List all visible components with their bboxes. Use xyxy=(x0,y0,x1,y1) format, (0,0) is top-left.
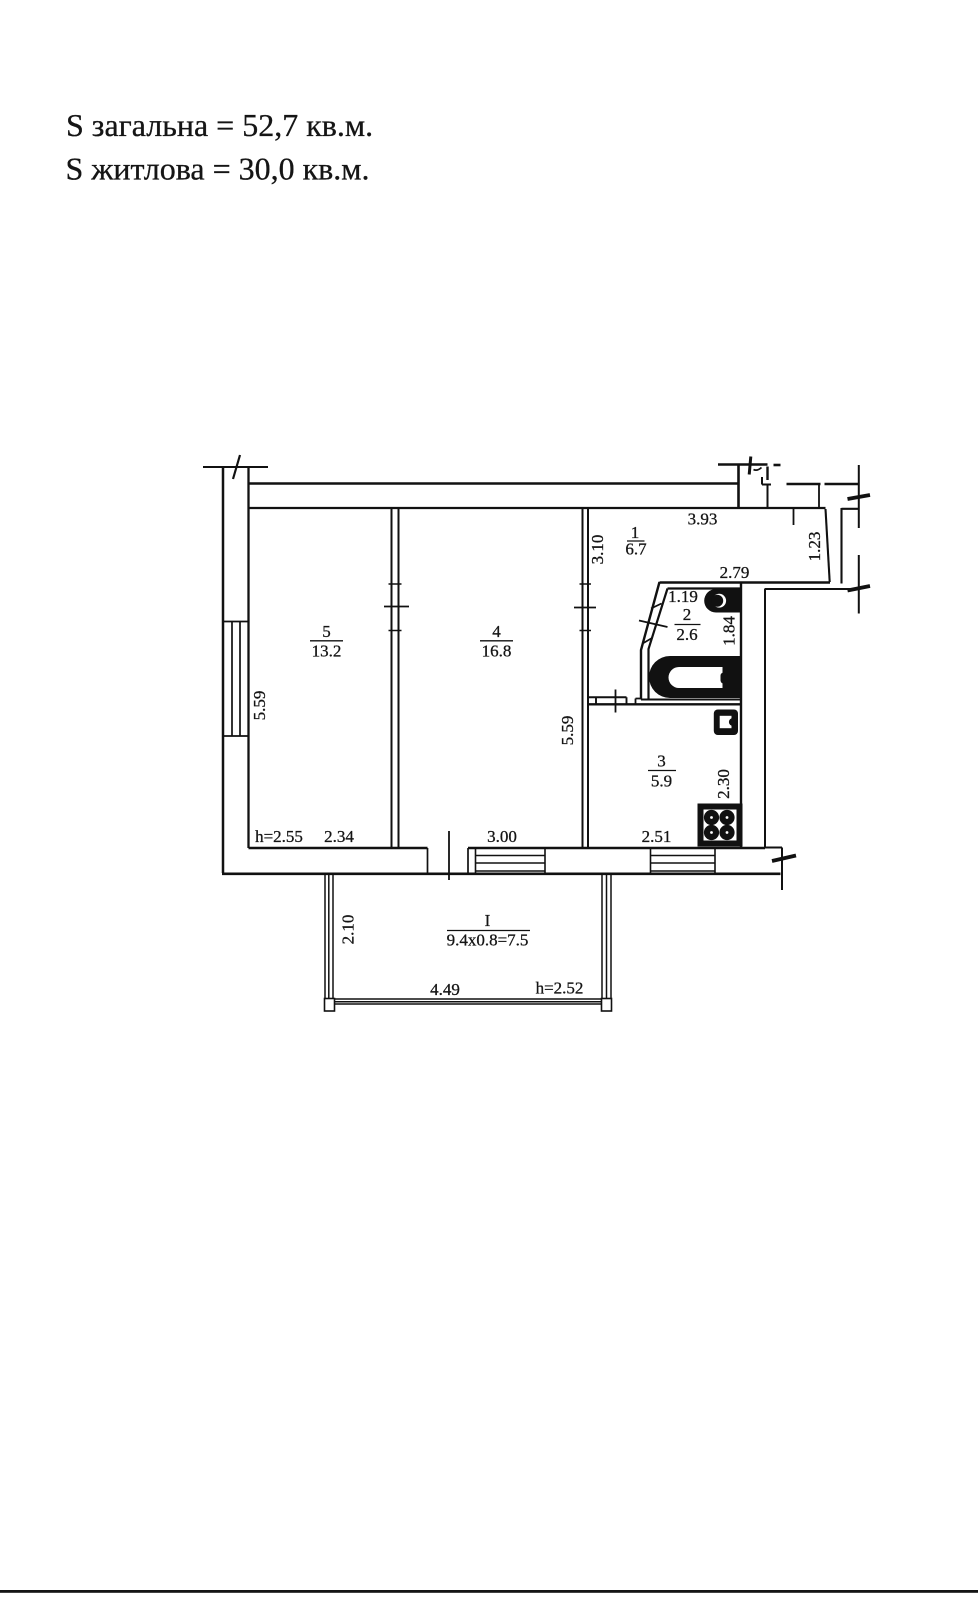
svg-text:5.9: 5.9 xyxy=(651,772,672,791)
svg-text:3.10: 3.10 xyxy=(588,535,607,565)
svg-text:2.30: 2.30 xyxy=(714,769,733,799)
svg-text:h=2.55: h=2.55 xyxy=(255,827,303,846)
svg-text:5.59: 5.59 xyxy=(558,716,577,746)
svg-text:2: 2 xyxy=(683,605,692,624)
svg-text:3.93: 3.93 xyxy=(688,510,718,529)
svg-text:2.79: 2.79 xyxy=(720,563,750,582)
svg-text:1.23: 1.23 xyxy=(805,532,824,562)
svg-text:h=2.52: h=2.52 xyxy=(536,979,584,998)
svg-text:2.34: 2.34 xyxy=(324,827,354,846)
svg-text:I: I xyxy=(485,911,491,930)
svg-text:1.84: 1.84 xyxy=(720,616,739,646)
svg-text:S загальна = 52,7 кв.м.: S загальна = 52,7 кв.м. xyxy=(66,107,373,143)
svg-text:2.6: 2.6 xyxy=(676,625,697,644)
svg-text:3: 3 xyxy=(657,752,666,771)
svg-text:16.8: 16.8 xyxy=(482,642,512,661)
svg-text:6.7: 6.7 xyxy=(625,540,647,559)
svg-text:S житлова = 30,0 кв.м.: S житлова = 30,0 кв.м. xyxy=(66,151,370,187)
svg-text:4.49: 4.49 xyxy=(430,980,460,999)
svg-text:1.19: 1.19 xyxy=(668,587,698,606)
svg-text:4: 4 xyxy=(492,622,501,641)
svg-text:5: 5 xyxy=(322,622,331,641)
svg-text:2.51: 2.51 xyxy=(642,827,672,846)
svg-text:9.4x0.8=7.5: 9.4x0.8=7.5 xyxy=(447,931,529,950)
svg-text:5.59: 5.59 xyxy=(250,691,269,721)
svg-text:2.10: 2.10 xyxy=(339,915,358,945)
svg-text:3.00: 3.00 xyxy=(487,827,517,846)
svg-text:13.2: 13.2 xyxy=(312,642,342,661)
